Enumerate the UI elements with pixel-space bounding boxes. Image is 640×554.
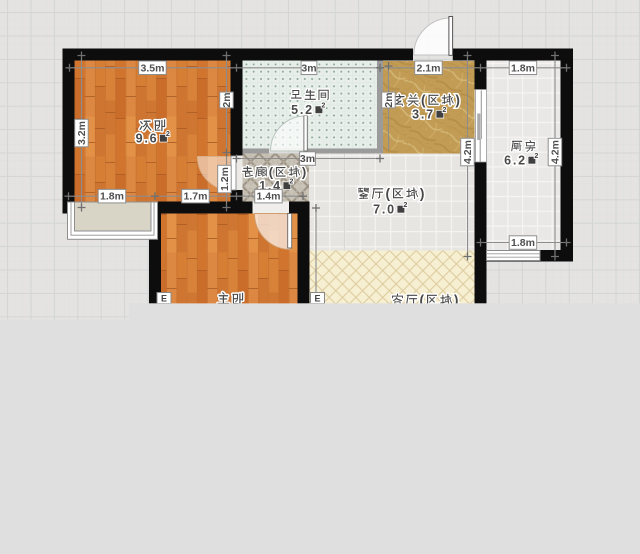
svg-text:2: 2	[289, 177, 293, 186]
svg-text:3.2m: 3.2m	[76, 121, 88, 145]
svg-text:4.2m: 4.2m	[462, 140, 474, 164]
svg-text:2: 2	[403, 200, 407, 209]
svg-text:4.2m: 4.2m	[550, 140, 562, 164]
svg-text:1.8m: 1.8m	[511, 237, 535, 249]
svg-text:): )	[302, 165, 306, 180]
svg-text:2: 2	[442, 105, 446, 114]
svg-text:): )	[455, 93, 460, 108]
svg-text:(: (	[421, 93, 426, 108]
svg-text:(: (	[386, 186, 391, 201]
svg-text:2: 2	[166, 129, 170, 138]
svg-text:2m: 2m	[383, 92, 395, 107]
svg-text:7.0: 7.0	[373, 203, 396, 217]
svg-text:(: (	[269, 165, 274, 180]
svg-text:2m: 2m	[221, 92, 233, 107]
svg-text:3m: 3m	[301, 62, 316, 74]
svg-text:E: E	[161, 294, 167, 304]
svg-text:E: E	[314, 294, 320, 304]
svg-text:2: 2	[534, 151, 538, 160]
svg-text:1.7m: 1.7m	[184, 191, 208, 203]
svg-text:1.8m: 1.8m	[100, 191, 124, 203]
svg-text:9.6: 9.6	[136, 132, 159, 146]
svg-text:1.4m: 1.4m	[257, 191, 281, 203]
svg-text:1.2m: 1.2m	[219, 167, 231, 191]
svg-text:3.7: 3.7	[412, 108, 435, 122]
svg-text:5.2: 5.2	[291, 103, 314, 117]
svg-text:3.5m: 3.5m	[141, 62, 165, 74]
svg-text:1.8m: 1.8m	[511, 62, 535, 74]
svg-text:3m: 3m	[300, 153, 315, 165]
svg-text:2.1m: 2.1m	[417, 62, 441, 74]
svg-text:2: 2	[321, 101, 325, 110]
svg-text:): )	[420, 186, 425, 201]
svg-text:6.2: 6.2	[504, 154, 527, 168]
